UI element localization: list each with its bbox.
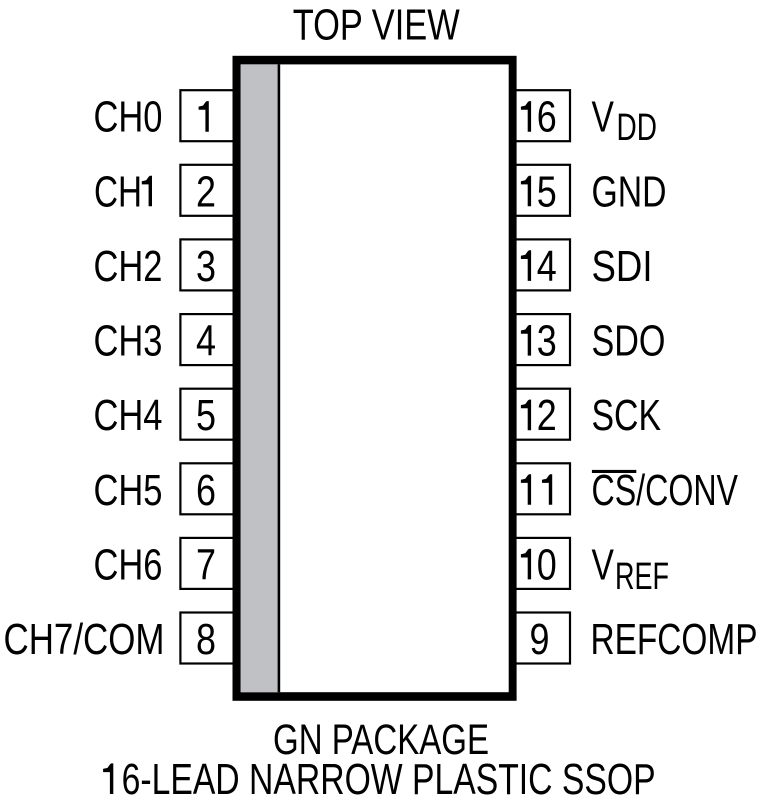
svg-text:3: 3 bbox=[537, 317, 557, 366]
svg-text:CH0: CH0 bbox=[94, 93, 163, 142]
svg-text:SDI: SDI bbox=[592, 242, 653, 291]
svg-text:SDO: SDO bbox=[592, 317, 666, 366]
svg-text:4: 4 bbox=[196, 317, 216, 366]
svg-text:0: 0 bbox=[537, 540, 557, 589]
svg-text:7: 7 bbox=[196, 540, 216, 589]
svg-text:TOP VIEW: TOP VIEW bbox=[293, 2, 460, 50]
svg-text:CS/CONV: CS/CONV bbox=[592, 466, 739, 515]
svg-text:SCK: SCK bbox=[592, 391, 662, 440]
svg-text:CH3: CH3 bbox=[94, 317, 163, 366]
svg-text:CH4: CH4 bbox=[94, 391, 163, 440]
svg-text:V: V bbox=[592, 540, 615, 589]
svg-text:5: 5 bbox=[196, 391, 216, 440]
svg-text:8: 8 bbox=[196, 615, 216, 664]
svg-text:3: 3 bbox=[196, 242, 216, 291]
svg-text:DD: DD bbox=[617, 107, 658, 149]
svg-text:CH7/COM: CH7/COM bbox=[4, 615, 165, 664]
svg-text:CH2: CH2 bbox=[94, 242, 163, 291]
svg-text:GND: GND bbox=[592, 167, 667, 216]
svg-text:2: 2 bbox=[196, 167, 216, 216]
svg-text:4: 4 bbox=[537, 242, 557, 291]
svg-text:CH6: CH6 bbox=[94, 540, 163, 589]
svg-text:9: 9 bbox=[530, 615, 550, 664]
svg-text:V: V bbox=[592, 93, 615, 142]
svg-text:CH: CH bbox=[94, 167, 142, 216]
svg-text:6-LEAD NARROW PLASTIC SSOP: 6-LEAD NARROW PLASTIC SSOP bbox=[122, 756, 656, 804]
svg-text:REFCOMP: REFCOMP bbox=[591, 615, 758, 664]
svg-text:6: 6 bbox=[537, 93, 557, 142]
svg-text:5: 5 bbox=[537, 167, 557, 216]
svg-text:2: 2 bbox=[537, 391, 557, 440]
svg-text:6: 6 bbox=[196, 466, 216, 515]
svg-text:REF: REF bbox=[615, 556, 669, 598]
svg-text:CH5: CH5 bbox=[94, 466, 163, 515]
